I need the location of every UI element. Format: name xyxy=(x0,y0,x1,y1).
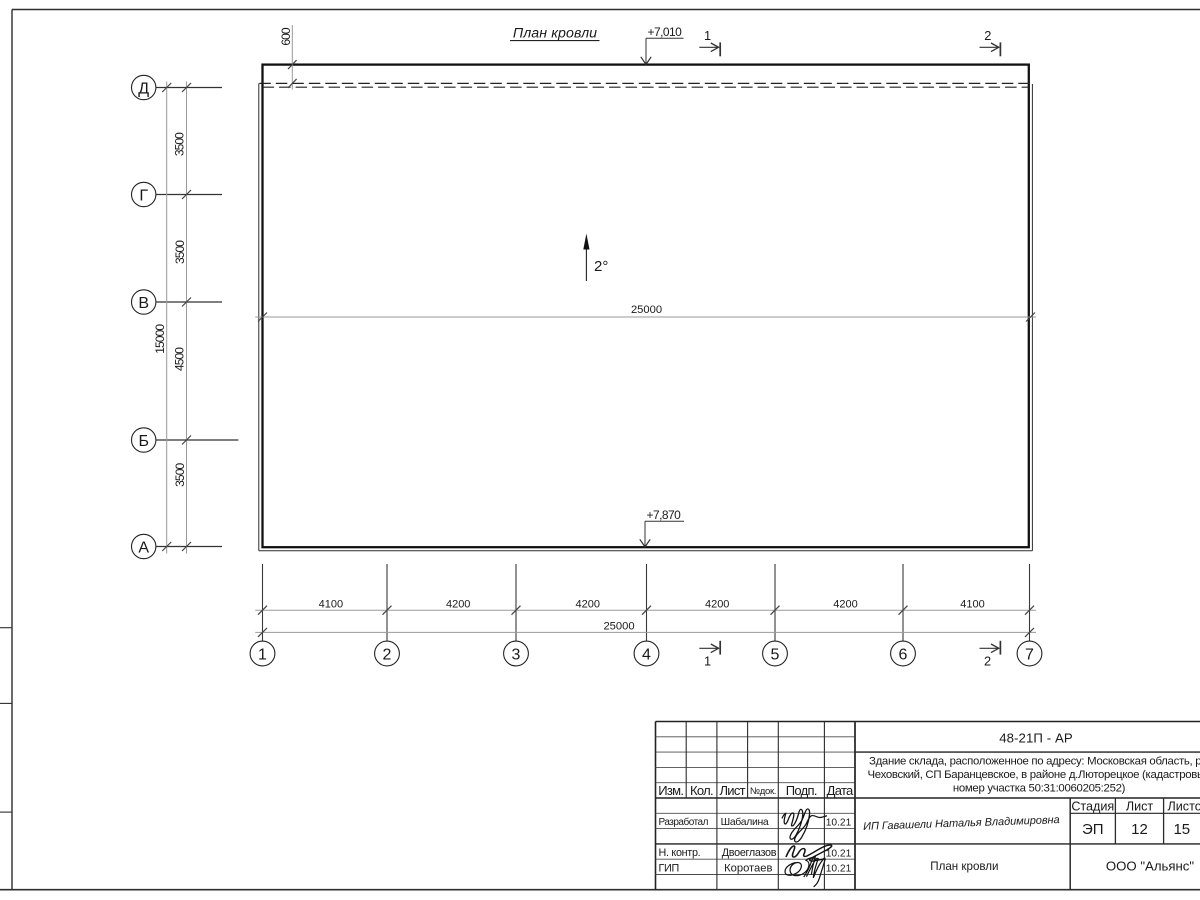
svg-text:Г: Г xyxy=(139,187,148,204)
svg-text:+7,870: +7,870 xyxy=(647,508,682,522)
svg-text:4100: 4100 xyxy=(960,598,984,610)
svg-text:Изм.: Изм. xyxy=(658,783,683,798)
svg-text:10.21: 10.21 xyxy=(826,848,852,859)
svg-text:4200: 4200 xyxy=(833,598,857,610)
svg-text:4200: 4200 xyxy=(446,598,470,610)
svg-text:ЭП: ЭП xyxy=(1082,821,1104,838)
svg-text:Стадия: Стадия xyxy=(1071,800,1114,814)
svg-text:План кровли: План кровли xyxy=(513,25,597,41)
svg-text:2: 2 xyxy=(984,28,991,43)
svg-text:3500: 3500 xyxy=(173,132,187,156)
svg-text:№док.: №док. xyxy=(750,786,776,797)
svg-text:5: 5 xyxy=(771,646,780,663)
svg-text:Двоеглазов: Двоеглазов xyxy=(722,847,777,859)
svg-text:25000: 25000 xyxy=(603,621,634,633)
svg-text:6: 6 xyxy=(899,646,908,663)
svg-text:2°: 2° xyxy=(594,258,608,275)
svg-text:План кровли: План кровли xyxy=(930,860,998,873)
svg-text:В: В xyxy=(138,295,149,312)
svg-text:4100: 4100 xyxy=(319,598,343,610)
svg-text:Коротаев: Коротаев xyxy=(724,862,772,874)
svg-text:2: 2 xyxy=(984,653,991,668)
svg-text:25000: 25000 xyxy=(631,304,662,316)
svg-text:Чеховский, СП Баранцевское, в: Чеховский, СП Баранцевское, в районе д.Л… xyxy=(868,769,1200,781)
svg-text:Здание склада, расположенное п: Здание склада, расположенное по адресу: … xyxy=(869,756,1200,768)
svg-text:2: 2 xyxy=(383,646,392,663)
svg-text:600: 600 xyxy=(279,27,293,46)
svg-text:Шабалина: Шабалина xyxy=(721,816,769,828)
svg-text:15: 15 xyxy=(1173,821,1190,838)
svg-text:Дата: Дата xyxy=(827,783,854,798)
svg-text:15000: 15000 xyxy=(153,324,167,354)
svg-text:48-21П - АР: 48-21П - АР xyxy=(999,731,1073,746)
svg-text:Н. контр.: Н. контр. xyxy=(659,847,701,859)
svg-text:Д: Д xyxy=(138,80,149,97)
svg-text:3500: 3500 xyxy=(173,463,187,487)
svg-text:4500: 4500 xyxy=(173,347,187,371)
svg-text:Б: Б xyxy=(138,433,149,450)
svg-text:4200: 4200 xyxy=(705,598,729,610)
svg-text:ООО "Альянс": ООО "Альянс" xyxy=(1106,859,1194,874)
svg-text:+7,010: +7,010 xyxy=(648,25,683,39)
svg-text:12: 12 xyxy=(1131,821,1148,838)
svg-text:номер участка 50:31:0060205:25: номер участка 50:31:0060205:252) xyxy=(953,783,1126,795)
svg-text:7: 7 xyxy=(1025,646,1034,663)
svg-text:10.21: 10.21 xyxy=(826,864,852,875)
svg-text:ГИП: ГИП xyxy=(659,862,679,874)
svg-text:4: 4 xyxy=(642,646,651,663)
svg-text:1: 1 xyxy=(704,28,711,43)
svg-text:Подп.: Подп. xyxy=(786,783,817,798)
svg-text:Лист: Лист xyxy=(1126,800,1154,814)
svg-text:1: 1 xyxy=(704,653,711,668)
svg-text:3: 3 xyxy=(512,646,521,663)
svg-text:Лист: Лист xyxy=(719,783,745,798)
svg-text:Кол.: Кол. xyxy=(690,783,713,798)
svg-text:4200: 4200 xyxy=(576,598,600,610)
svg-text:3500: 3500 xyxy=(173,240,187,264)
svg-text:1: 1 xyxy=(258,646,267,663)
svg-text:А: А xyxy=(138,539,149,556)
svg-text:10.21: 10.21 xyxy=(826,818,852,829)
svg-text:Разработал: Разработал xyxy=(659,816,709,828)
svg-text:Листов: Листов xyxy=(1168,800,1200,814)
